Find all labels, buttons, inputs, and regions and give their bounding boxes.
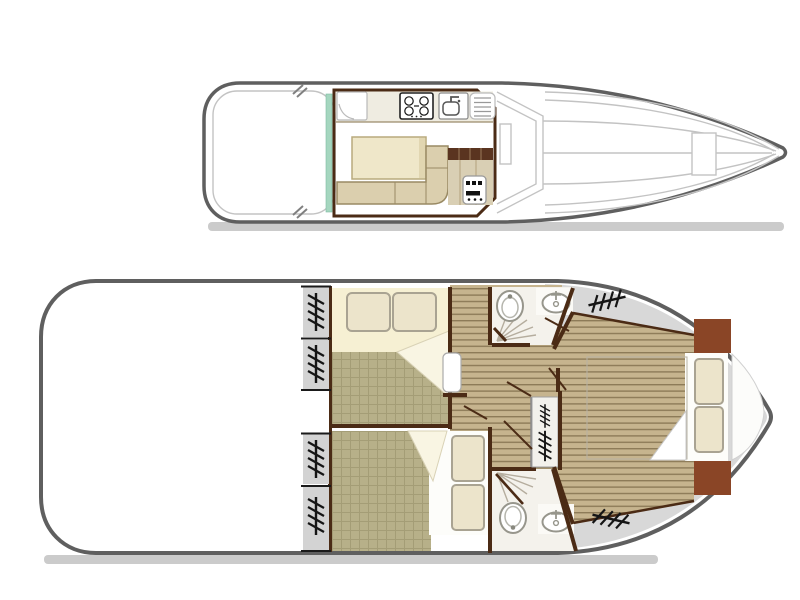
bow-seat — [732, 354, 764, 460]
deck-plans-drawing — [0, 0, 800, 600]
aft-side-cabin — [331, 431, 490, 551]
helm-console — [463, 176, 486, 204]
pillow — [452, 485, 484, 530]
toilet-icon — [500, 503, 526, 533]
hull-shadow — [44, 555, 658, 564]
lower-deck-plan — [41, 281, 771, 564]
duvet — [331, 431, 431, 551]
toilet-icon — [497, 291, 523, 321]
upper-deck-plan — [204, 83, 786, 231]
saloon — [326, 90, 495, 216]
bow-hatch — [692, 133, 716, 175]
pillow — [393, 293, 436, 331]
helm-area — [448, 148, 493, 205]
sliding-door-strip — [326, 94, 332, 212]
boat-floor-plan-page — [0, 0, 800, 600]
pillow — [347, 293, 390, 331]
bow-side-cabin — [331, 288, 449, 427]
fridge — [337, 92, 367, 120]
stove-icon — [400, 93, 433, 119]
cabin-door — [443, 353, 461, 392]
master-cabin-floor — [554, 312, 694, 524]
pillow — [452, 436, 484, 481]
side-windows — [301, 287, 331, 552]
drainer-icon — [470, 93, 495, 119]
pillow — [695, 407, 723, 452]
sink-icon — [439, 93, 468, 119]
pillow — [695, 359, 723, 404]
dinette-table — [352, 137, 426, 179]
headboard — [694, 461, 731, 495]
headboard — [694, 319, 731, 353]
